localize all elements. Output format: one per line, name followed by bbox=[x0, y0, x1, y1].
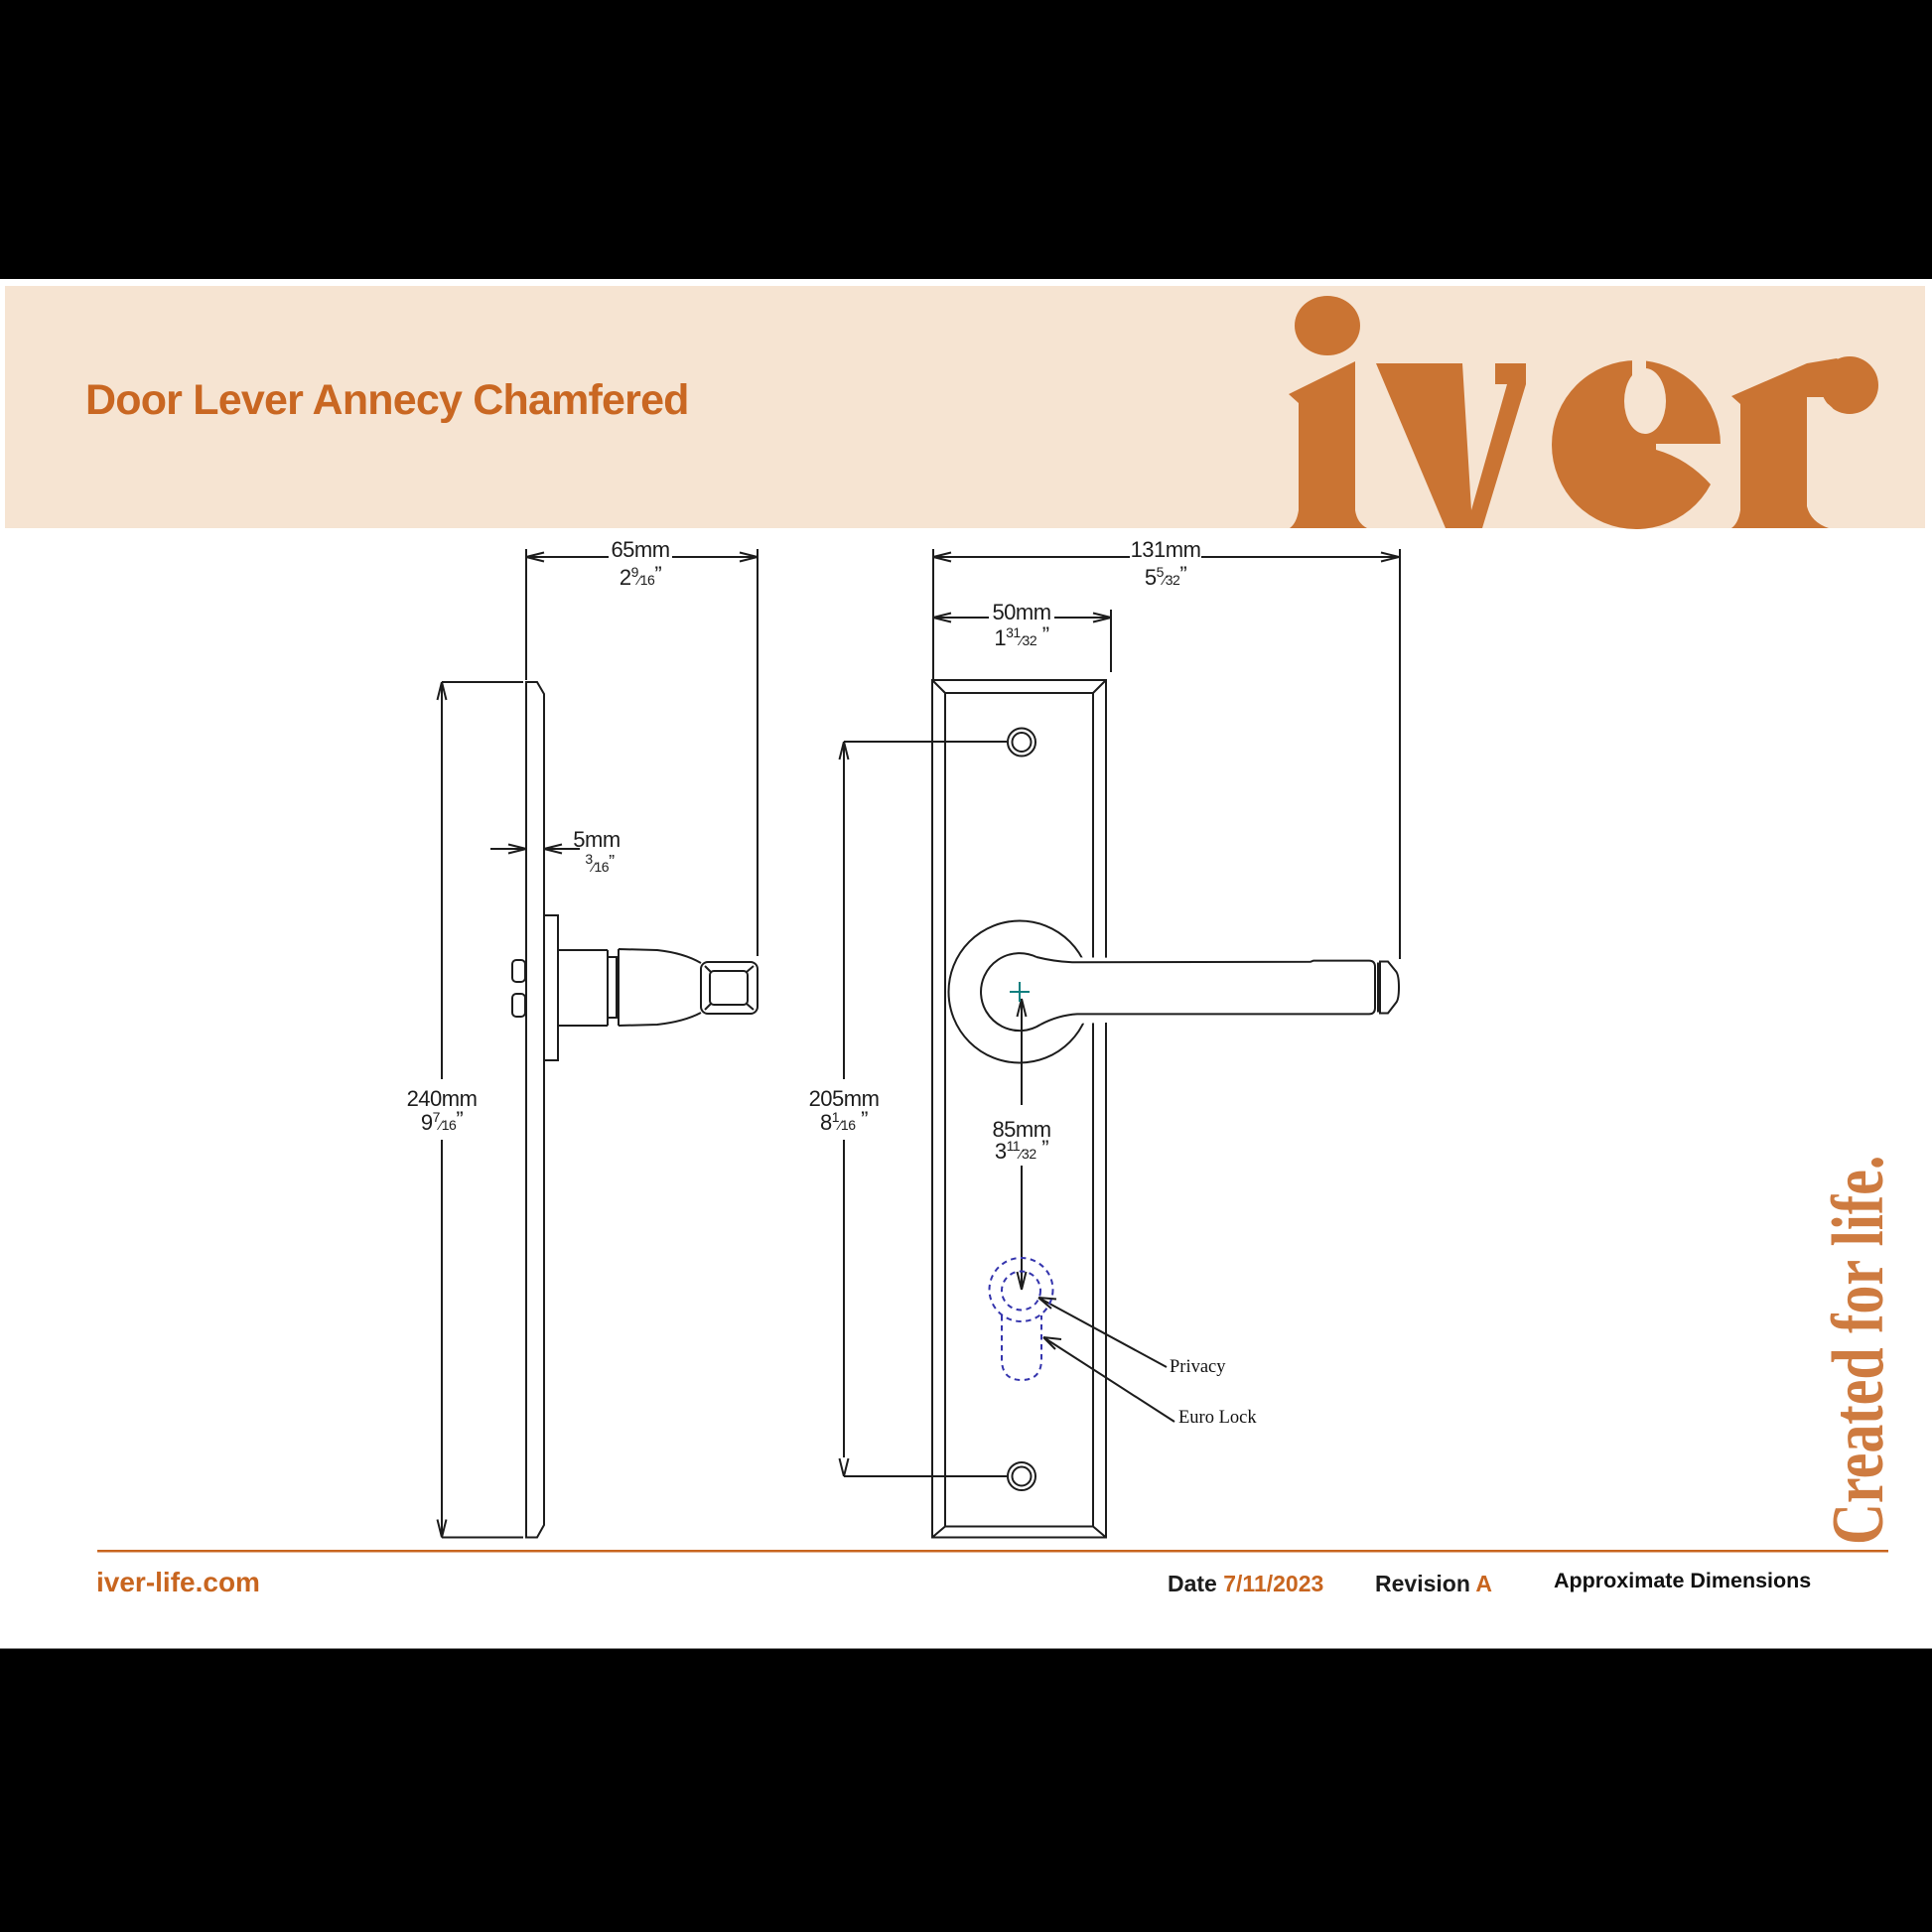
svg-text:131mm: 131mm bbox=[1131, 537, 1201, 562]
svg-text:131⁄32 ”: 131⁄32 ” bbox=[994, 622, 1048, 650]
svg-text:240mm: 240mm bbox=[407, 1086, 478, 1111]
svg-text:3⁄16”: 3⁄16” bbox=[585, 851, 615, 875]
svg-text:29⁄16”: 29⁄16” bbox=[620, 562, 661, 590]
svg-text:Created for life.: Created for life. bbox=[1818, 1156, 1898, 1545]
svg-text:97⁄16”: 97⁄16” bbox=[421, 1107, 463, 1135]
svg-text:81⁄16 ”: 81⁄16 ” bbox=[820, 1107, 868, 1135]
svg-text:65mm: 65mm bbox=[611, 537, 669, 562]
svg-text:Door Lever Annecy Chamfered: Door Lever Annecy Chamfered bbox=[85, 376, 689, 424]
svg-text:Approximate Dimensions: Approximate Dimensions bbox=[1554, 1569, 1811, 1592]
svg-text:50mm: 50mm bbox=[992, 600, 1050, 624]
svg-text:Euro Lock: Euro Lock bbox=[1178, 1408, 1257, 1428]
svg-text:205mm: 205mm bbox=[809, 1086, 880, 1111]
svg-text:55⁄32”: 55⁄32” bbox=[1145, 562, 1186, 590]
svg-text:Revision A: Revision A bbox=[1375, 1571, 1492, 1596]
svg-text:iver-life.com: iver-life.com bbox=[96, 1567, 260, 1597]
svg-text:Date 7/11/2023: Date 7/11/2023 bbox=[1168, 1571, 1323, 1596]
svg-text:5mm: 5mm bbox=[573, 827, 620, 852]
svg-text:Privacy: Privacy bbox=[1170, 1357, 1226, 1377]
